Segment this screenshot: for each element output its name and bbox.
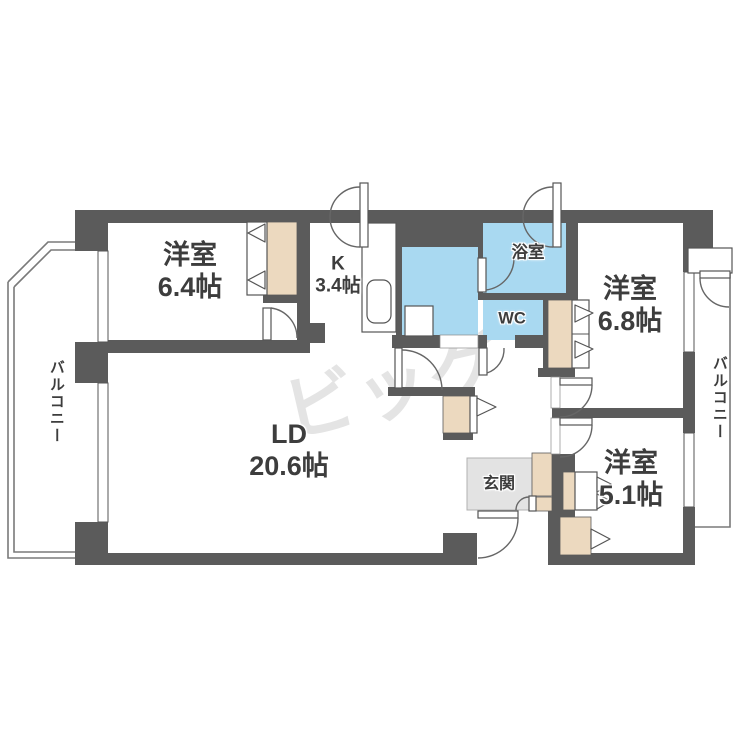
kitchen-service-door	[360, 183, 368, 247]
window-bedroom1	[98, 251, 108, 342]
label-bedroom3: 洋室 5.1帖	[599, 448, 664, 512]
label-bathroom: 浴室	[512, 243, 545, 262]
window-bedroom2	[684, 272, 694, 352]
room-name: 洋室	[158, 240, 223, 272]
room-name: バルコニー	[710, 356, 728, 441]
balcony-left-outline	[8, 242, 76, 558]
room-name: 浴室	[512, 243, 545, 262]
room-size: 6.4帖	[158, 272, 223, 304]
north-service-door	[553, 183, 561, 247]
label-balcony-left: バルコニー	[47, 360, 65, 445]
balcony-partition	[688, 248, 732, 273]
label-kitchen: K 3.4帖	[315, 254, 360, 299]
closet-hall	[443, 396, 470, 433]
label-bedroom2: 洋室 6.8帖	[598, 274, 663, 338]
washer-space	[405, 306, 433, 336]
bedroom1-door	[263, 308, 271, 340]
label-toilet: WC	[498, 309, 526, 328]
bedroom2-door	[560, 378, 592, 385]
room-size: 3.4帖	[315, 276, 360, 298]
label-living: LD 20.6帖	[249, 419, 329, 483]
shoe-cabinet	[532, 453, 552, 496]
toilet-door	[479, 348, 487, 375]
floorplan-page: ビッグ	[0, 0, 750, 750]
label-balcony-right: バルコニー	[710, 356, 728, 441]
entrance-door	[478, 511, 518, 518]
closet-bedroom3	[563, 472, 575, 510]
label-bedroom1: 洋室 6.4帖	[158, 240, 223, 304]
floorplan-drawing	[0, 0, 750, 750]
living-hall-door	[395, 348, 402, 388]
bedroom3-door	[560, 418, 592, 425]
bathroom-door	[478, 258, 486, 292]
room-name: 洋室	[598, 274, 663, 306]
room-name: LD	[249, 419, 329, 451]
label-entrance: 玄関	[483, 476, 515, 495]
room-size: 20.6帖	[249, 451, 329, 483]
window-bedroom3	[684, 433, 694, 507]
balcony-door	[700, 271, 730, 278]
entrance-side-door	[529, 496, 536, 511]
closet-bedroom2	[548, 300, 572, 368]
room-name: 玄関	[483, 476, 515, 495]
closet-bedroom1	[267, 222, 297, 295]
room-size: 6.8帖	[598, 306, 663, 338]
window-living	[98, 383, 108, 522]
room-size: 5.1帖	[599, 480, 664, 512]
room-name: WC	[498, 309, 526, 328]
room-name: K	[315, 254, 360, 276]
closet-bedroom3-south	[560, 517, 591, 555]
room-name: バルコニー	[47, 360, 65, 445]
kitchen-sink	[367, 280, 391, 323]
room-name: 洋室	[599, 448, 664, 480]
